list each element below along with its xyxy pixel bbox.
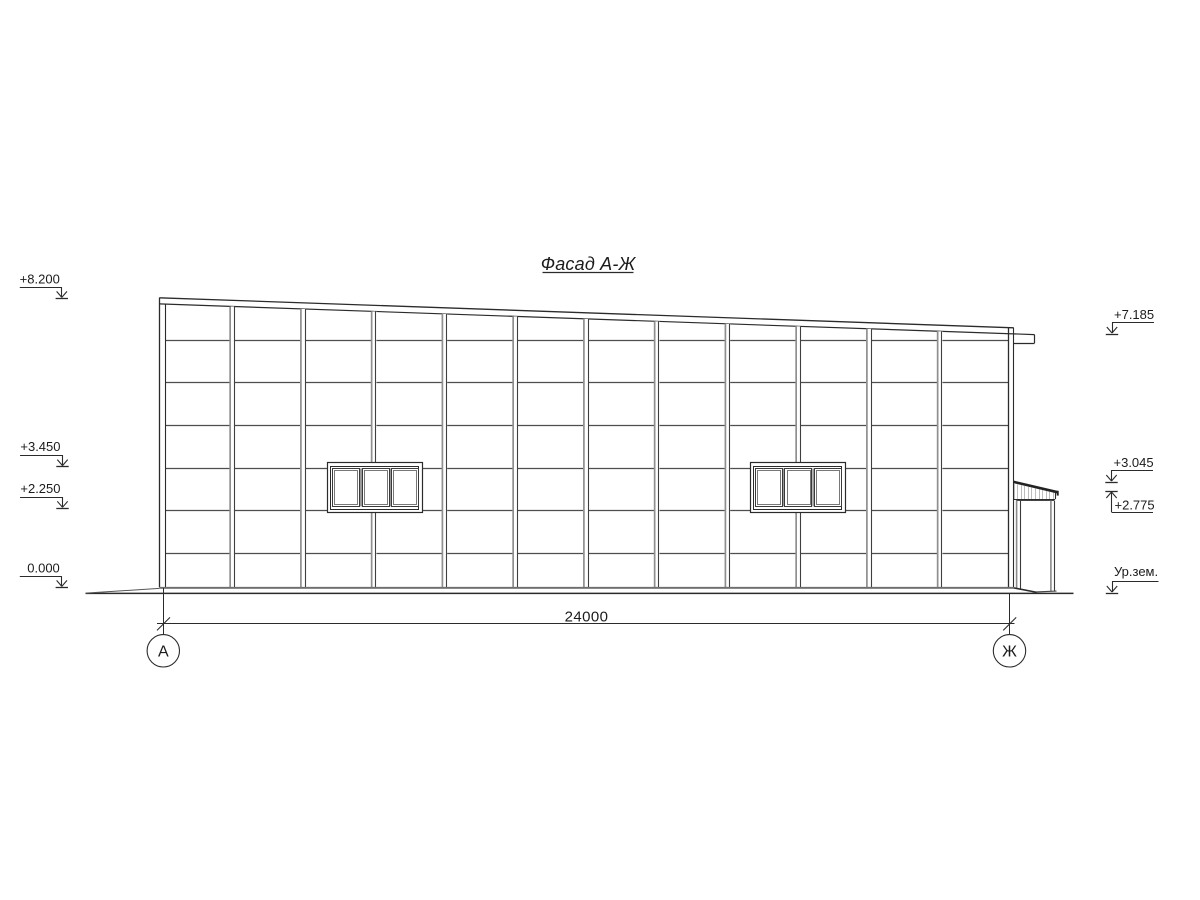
svg-text:А: А: [158, 643, 169, 660]
svg-text:Фасад А-Ж: Фасад А-Ж: [541, 254, 637, 274]
svg-text:Ж: Ж: [1002, 643, 1017, 660]
svg-text:+8.200: +8.200: [20, 271, 60, 286]
svg-text:+7.185: +7.185: [1114, 307, 1154, 322]
svg-text:Ур.зем.: Ур.зем.: [1114, 564, 1158, 579]
svg-text:+2.250: +2.250: [20, 481, 60, 496]
svg-text:0.000: 0.000: [27, 561, 60, 576]
svg-text:+2.775: +2.775: [1115, 498, 1155, 513]
svg-text:+3.045: +3.045: [1114, 455, 1154, 470]
svg-text:+3.450: +3.450: [20, 439, 60, 454]
svg-text:24000: 24000: [565, 609, 609, 626]
